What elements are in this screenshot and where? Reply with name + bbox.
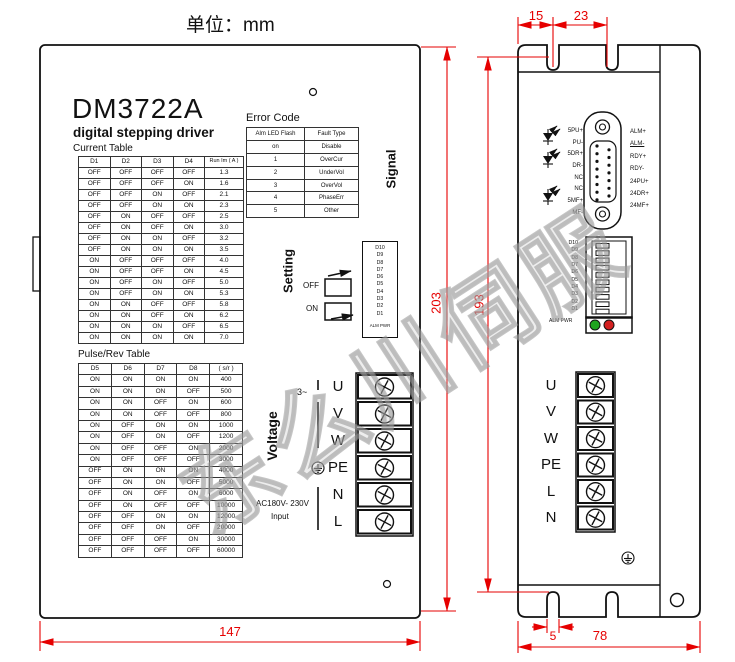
table-cell: ON — [79, 455, 112, 466]
table-cell: 1000 — [210, 420, 243, 431]
table-cell: OFF — [110, 256, 142, 267]
model-title: DM3722A — [72, 94, 204, 125]
table-cell: ON — [173, 267, 205, 278]
table-cell: ON — [142, 245, 174, 256]
pin-label: 5MF+ — [549, 196, 583, 208]
dim-5: 5 — [543, 629, 563, 643]
switch-on-label: ON — [306, 305, 318, 314]
three-phase-label: 3~ — [297, 388, 307, 398]
table-cell: OFF — [173, 256, 205, 267]
table-cell: ON — [79, 432, 112, 443]
table-cell: ON — [144, 477, 177, 488]
table-cell: OFF — [144, 534, 177, 545]
table-cell: OFF — [173, 212, 205, 223]
table-cell: OFF — [173, 234, 205, 245]
table-row: 5Other — [247, 205, 359, 218]
table-cell: ON — [110, 212, 142, 223]
dip-pin-label: D10 — [363, 245, 397, 252]
table-row: ONONOFFON600 — [79, 398, 243, 409]
table-cell: ON — [173, 333, 205, 344]
table-cell: OFF — [110, 179, 142, 190]
table-row: ONONONON7.0 — [79, 333, 244, 344]
table-cell: OFF — [79, 201, 111, 212]
table-cell: ON — [142, 289, 174, 300]
table-cell: 3.2 — [205, 234, 244, 245]
table-cell: OFF — [177, 409, 210, 420]
table-row: OFFOFFONOFF2.1 — [79, 190, 244, 201]
table-cell: 4.5 — [205, 267, 244, 278]
table-cell: 5 — [247, 205, 305, 218]
table-row: OFFONONON4000 — [79, 466, 243, 477]
table-row: OFFONOFFOFF2.5 — [79, 212, 244, 223]
dip-switch-position-icons — [325, 271, 353, 320]
table-cell: OFF — [142, 168, 174, 179]
pin-label: PU- — [549, 138, 583, 150]
dim-147: 147 — [205, 624, 255, 639]
header-row: Alm LED FlashFault Type — [247, 128, 359, 141]
table-cell: OFF — [79, 534, 112, 545]
table-cell: ON — [111, 489, 144, 500]
table-cell: 4 — [247, 192, 305, 205]
table-row: ONONOFFOFF5.8 — [79, 300, 244, 311]
table-cell: PhaseErr — [305, 192, 359, 205]
table-cell: 12000 — [210, 512, 243, 523]
table-cell: ON — [111, 375, 144, 386]
dim-193: 193 — [472, 294, 487, 316]
right-terminal-l: L — [537, 483, 565, 501]
right-dip-switch — [586, 237, 632, 333]
pin-label: NC — [549, 173, 583, 185]
col-header: D2 — [110, 157, 142, 168]
table-cell: ON — [79, 300, 111, 311]
right-terminal-n: N — [537, 509, 565, 527]
dip-pin-label: D9 — [555, 247, 578, 254]
voltage-section-label: Voltage — [264, 411, 280, 461]
table-row: OFFOFFONON2.3 — [79, 201, 244, 212]
table-cell: OFF — [173, 278, 205, 289]
table-row: OFFONONOFF5000 — [79, 477, 243, 488]
setting-section-label: Setting — [281, 249, 296, 293]
table-row: OFFOFFOFFON30000 — [79, 534, 243, 545]
pulse-rev-table: D5D6D7D8( s/r )ONONONON400ONONONOFF500ON… — [78, 363, 243, 558]
table-row: onDisable — [247, 140, 359, 153]
terminal-v: V — [324, 405, 352, 423]
table-row: OFFONONON3.5 — [79, 245, 244, 256]
col-header: Run Im ( A ) — [205, 157, 244, 168]
table-cell: ON — [111, 386, 144, 397]
table-cell: 1200 — [210, 432, 243, 443]
current-table: D1D2D3D4Run Im ( A )OFFOFFOFFOFF1.3OFFOF… — [78, 156, 244, 344]
table-cell: 2 — [247, 166, 305, 179]
table-cell: OFF — [79, 500, 112, 511]
table-cell: 7.0 — [205, 333, 244, 344]
table-cell: Disable — [305, 140, 359, 153]
table-cell: ON — [177, 443, 210, 454]
table-cell: ON — [111, 500, 144, 511]
table-cell: ON — [177, 466, 210, 477]
col-header: D5 — [79, 364, 112, 375]
ac-input-voltage-label: AC180V- 230V — [256, 500, 309, 509]
pulse-table-title: Pulse/Rev Table — [78, 349, 150, 360]
left-dip-legend: D10D9D8D7D6D5D4D3D2D1 ALM PWR — [362, 241, 398, 338]
table-cell: ON — [177, 375, 210, 386]
table-cell: OFF — [142, 267, 174, 278]
table-cell: OFF — [173, 168, 205, 179]
table-cell: OFF — [142, 179, 174, 190]
table-cell: ON — [79, 398, 112, 409]
table-cell: OFF — [177, 455, 210, 466]
dip-pin-label: D6 — [555, 269, 578, 276]
dim-15: 15 — [524, 8, 548, 23]
table-cell: OFF — [142, 223, 174, 234]
table-row: OFFONOFFON3.0 — [79, 223, 244, 234]
db15-left-pin-labels: 5PU+PU-5DR+DR-NCNC5MF+MF- — [549, 126, 583, 220]
table-cell: OFF — [79, 523, 112, 534]
col-header: D1 — [79, 157, 111, 168]
table-cell: OFF — [111, 455, 144, 466]
col-header: ( s/r ) — [210, 364, 243, 375]
header-row: D5D6D7D8( s/r ) — [79, 364, 243, 375]
right-terminal-w: W — [537, 430, 565, 448]
table-cell: ON — [79, 311, 111, 322]
table-row: ONONOFFOFF800 — [79, 409, 243, 420]
pin-label: MF- — [549, 208, 583, 220]
table-cell: 2.1 — [205, 190, 244, 201]
table-row: 1OverCur — [247, 153, 359, 166]
table-cell: ON — [144, 466, 177, 477]
table-row: ONOFFOFFOFF4.0 — [79, 256, 244, 267]
error-code-table: Alm LED FlashFault TypeonDisable1OverCur… — [246, 127, 359, 218]
table-cell: ON — [144, 420, 177, 431]
unit-label: 单位：mm — [186, 16, 275, 37]
table-cell: 2.3 — [205, 201, 244, 212]
table-cell: OFF — [144, 500, 177, 511]
dip-pin-label: D1 — [555, 306, 578, 313]
table-cell: ON — [110, 311, 142, 322]
table-cell: OFF — [144, 546, 177, 557]
table-cell: OFF — [177, 477, 210, 488]
table-cell: ON — [79, 256, 111, 267]
table-cell: ON — [173, 311, 205, 322]
table-cell: 500 — [210, 386, 243, 397]
dim-203: 203 — [429, 292, 444, 314]
table-cell: OFF — [110, 267, 142, 278]
error-code-title: Error Code — [246, 112, 300, 124]
table-cell: ON — [79, 409, 112, 420]
table-row: OFFOFFONOFF20000 — [79, 523, 243, 534]
table-cell: 5000 — [210, 477, 243, 488]
col-header: Fault Type — [305, 128, 359, 141]
table-cell: 5.3 — [205, 289, 244, 300]
dimension-drawing: 单位：mm DM3722A digital stepping driver Cu… — [0, 0, 735, 662]
table-cell: 20000 — [210, 523, 243, 534]
table-cell: ON — [144, 375, 177, 386]
right-terminal-v: V — [537, 403, 565, 421]
terminal-w: W — [324, 432, 352, 450]
db15-connector — [584, 112, 621, 229]
table-cell: 6.5 — [205, 322, 244, 333]
table-cell: ON — [142, 201, 174, 212]
table-cell: OFF — [144, 398, 177, 409]
col-header: D6 — [111, 364, 144, 375]
dip-pin-label: D4 — [363, 289, 397, 296]
table-cell: OFF — [79, 489, 112, 500]
left-terminal-block — [356, 373, 413, 536]
table-cell: OFF — [79, 234, 111, 245]
table-cell: OFF — [142, 212, 174, 223]
table-cell: ON — [110, 300, 142, 311]
terminal-l: L — [324, 513, 352, 531]
table-cell: OFF — [110, 278, 142, 289]
table-cell: ON — [79, 278, 111, 289]
table-cell: OFF — [79, 212, 111, 223]
table-cell: 6000 — [210, 489, 243, 500]
table-cell: OFF — [111, 523, 144, 534]
dip-pin-label: D3 — [555, 291, 578, 298]
col-header: D3 — [142, 157, 174, 168]
table-cell: OFF — [177, 523, 210, 534]
table-cell: 10000 — [210, 500, 243, 511]
table-cell: ON — [142, 278, 174, 289]
table-cell: ON — [177, 512, 210, 523]
table-cell: 60000 — [210, 546, 243, 557]
table-cell: 2.5 — [205, 212, 244, 223]
table-row: ONOFFONON5.3 — [79, 289, 244, 300]
table-row: ONOFFOFFOFF3000 — [79, 455, 243, 466]
table-cell: OFF — [110, 289, 142, 300]
table-cell: ON — [173, 245, 205, 256]
table-cell: OFF — [110, 190, 142, 201]
table-cell: ON — [177, 489, 210, 500]
table-cell: OFF — [177, 500, 210, 511]
table-row: OFFOFFONON12000 — [79, 512, 243, 523]
pin-label-alm-plus: ALM+ — [630, 126, 664, 138]
current-table-title: Current Table — [73, 143, 133, 154]
table-row: OFFONONOFF3.2 — [79, 234, 244, 245]
col-header: D8 — [177, 364, 210, 375]
table-cell: 600 — [210, 398, 243, 409]
table-row: ONONONOFF500 — [79, 386, 243, 397]
table-cell: 2000 — [210, 443, 243, 454]
table-cell: OFF — [144, 409, 177, 420]
pin-label-alm-minus: ALM- — [630, 138, 664, 150]
table-cell: ON — [142, 333, 174, 344]
dip-pin-label: D7 — [363, 267, 397, 274]
table-cell: OFF — [79, 168, 111, 179]
table-cell: ON — [142, 190, 174, 201]
col-header: D4 — [173, 157, 205, 168]
pin-label: DR- — [549, 161, 583, 173]
table-row: OFFOFFOFFON1.6 — [79, 179, 244, 190]
table-row: ONONONOFF6.5 — [79, 322, 244, 333]
table-cell: OFF — [79, 546, 112, 557]
table-cell: OFF — [79, 223, 111, 234]
chassis-earth-icon — [622, 552, 634, 564]
table-row: OFFOFFOFFOFF1.3 — [79, 168, 244, 179]
table-row: ONOFFONON1000 — [79, 420, 243, 431]
table-cell: OFF — [79, 179, 111, 190]
table-cell: OFF — [177, 432, 210, 443]
terminal-u: U — [324, 378, 352, 396]
dip-pin-label: D6 — [363, 274, 397, 281]
table-cell: ON — [173, 179, 205, 190]
dip-pin-label: D8 — [555, 255, 578, 262]
pin-label-24mf: 24MF+ — [630, 200, 664, 212]
alarm-led-green — [590, 320, 600, 330]
table-cell: OFF — [111, 534, 144, 545]
table-cell: ON — [79, 267, 111, 278]
dip-pin-label: D8 — [363, 260, 397, 267]
table-cell: 3000 — [210, 455, 243, 466]
table-cell: OFF — [142, 256, 174, 267]
table-cell: OFF — [173, 300, 205, 311]
table-cell: OFF — [177, 546, 210, 557]
table-cell: ON — [110, 333, 142, 344]
table-cell: 1 — [247, 153, 305, 166]
right-dip-pin-labels: D10D9D8D7D6D5D4D3D2D1 — [555, 240, 578, 313]
db15-pins — [595, 144, 610, 201]
table-row: ONOFFONOFF1200 — [79, 432, 243, 443]
table-cell: ON — [111, 409, 144, 420]
table-cell: 5.8 — [205, 300, 244, 311]
table-row: 2UnderVol — [247, 166, 359, 179]
table-cell: ON — [142, 234, 174, 245]
pin-label-24dr: 24DR+ — [630, 188, 664, 200]
dip-pin-label: D5 — [363, 281, 397, 288]
table-cell: ON — [111, 398, 144, 409]
table-cell: ON — [79, 289, 111, 300]
model-subtitle: digital stepping driver — [73, 126, 214, 141]
table-cell: OFF — [173, 190, 205, 201]
right-terminal-u: U — [537, 377, 565, 395]
table-cell: ON — [79, 443, 112, 454]
table-row: ONOFFOFFON4.5 — [79, 267, 244, 278]
power-led-red — [604, 320, 614, 330]
pin-label-rdy-minus: RDY- — [630, 163, 664, 175]
table-cell: OverVol — [305, 179, 359, 192]
table-cell: OFF — [111, 432, 144, 443]
terminal-pe: PE — [324, 459, 352, 477]
table-cell: 5.0 — [205, 278, 244, 289]
table-cell: ON — [111, 466, 144, 477]
dip-pin-label: D1 — [363, 311, 397, 318]
header-row: D1D2D3D4Run Im ( A ) — [79, 157, 244, 168]
table-cell: OFF — [111, 420, 144, 431]
dim-23: 23 — [569, 8, 593, 23]
table-cell: 4.0 — [205, 256, 244, 267]
dip-pin-label: D10 — [555, 240, 578, 247]
table-cell: OFF — [79, 477, 112, 488]
table-cell: ON — [144, 432, 177, 443]
table-row: OFFONOFFOFF10000 — [79, 500, 243, 511]
table-cell: OFF — [79, 245, 111, 256]
table-cell: ON — [79, 322, 111, 333]
terminal-n: N — [324, 486, 352, 504]
right-terminal-pe: PE — [537, 456, 565, 474]
table-cell: ON — [144, 523, 177, 534]
dip-pin-label: D7 — [555, 262, 578, 269]
table-cell: ON — [173, 201, 205, 212]
table-cell: ON — [177, 420, 210, 431]
table-row: ONOFFONOFF5.0 — [79, 278, 244, 289]
right-alm-pwr-label: ALM PWR — [549, 319, 584, 325]
pe-earth-icon — [312, 462, 324, 474]
table-cell: 30000 — [210, 534, 243, 545]
table-cell: ON — [111, 477, 144, 488]
table-cell: ON — [177, 534, 210, 545]
dip-pin-label: D2 — [555, 299, 578, 306]
right-terminal-block — [576, 372, 615, 532]
table-cell: UnderVol — [305, 166, 359, 179]
dip-pin-label: D9 — [363, 252, 397, 259]
table-cell: ON — [79, 420, 112, 431]
table-cell: 800 — [210, 409, 243, 420]
table-row: ONONONON400 — [79, 375, 243, 386]
table-row: 4PhaseErr — [247, 192, 359, 205]
table-cell: ON — [110, 234, 142, 245]
table-cell: OFF — [110, 201, 142, 212]
table-cell: 3.0 — [205, 223, 244, 234]
table-cell: on — [247, 140, 305, 153]
table-cell: 1.3 — [205, 168, 244, 179]
table-cell: ON — [177, 398, 210, 409]
table-cell: ON — [79, 333, 111, 344]
table-cell: 6.2 — [205, 311, 244, 322]
dip-pin-label: D2 — [363, 303, 397, 310]
table-cell: ON — [79, 386, 112, 397]
pin-label: 5DR+ — [549, 149, 583, 161]
table-cell: 3.5 — [205, 245, 244, 256]
table-cell: ON — [173, 289, 205, 300]
table-cell: OFF — [142, 311, 174, 322]
switch-off-label: OFF — [303, 282, 319, 291]
pin-label: NC — [549, 184, 583, 196]
signal-section-label: Signal — [384, 149, 399, 188]
pin-label-24pu: 24PU+ — [630, 176, 664, 188]
table-cell: OFF — [177, 386, 210, 397]
table-row: 3OverVol — [247, 179, 359, 192]
pin-label: 5PU+ — [549, 126, 583, 138]
table-cell: OFF — [173, 322, 205, 333]
dim-78: 78 — [580, 628, 620, 643]
table-cell: OverCur — [305, 153, 359, 166]
table-row: ONOFFOFFON2000 — [79, 443, 243, 454]
table-cell: ON — [144, 512, 177, 523]
col-header: Alm LED Flash — [247, 128, 305, 141]
table-cell: OFF — [111, 546, 144, 557]
dip-pin-label: D3 — [363, 296, 397, 303]
ac-input-label: Input — [271, 513, 289, 522]
table-cell: OFF — [79, 190, 111, 201]
table-cell: ON — [142, 322, 174, 333]
table-cell: 400 — [210, 375, 243, 386]
dip-pin-label: D4 — [555, 284, 578, 291]
table-cell: OFF — [111, 512, 144, 523]
table-cell: ON — [173, 223, 205, 234]
table-cell: 3 — [247, 179, 305, 192]
alm-pwr-label: ALM PWR — [363, 323, 397, 328]
table-cell: OFF — [144, 455, 177, 466]
table-cell: 1.6 — [205, 179, 244, 190]
table-row: OFFOFFOFFOFF60000 — [79, 546, 243, 557]
table-row: ONONOFFON6.2 — [79, 311, 244, 322]
table-cell: ON — [110, 245, 142, 256]
table-cell: OFF — [79, 466, 112, 477]
table-cell: Other — [305, 205, 359, 218]
table-cell: OFF — [144, 489, 177, 500]
pin-label-rdy-plus: RDY+ — [630, 151, 664, 163]
table-cell: OFF — [79, 512, 112, 523]
